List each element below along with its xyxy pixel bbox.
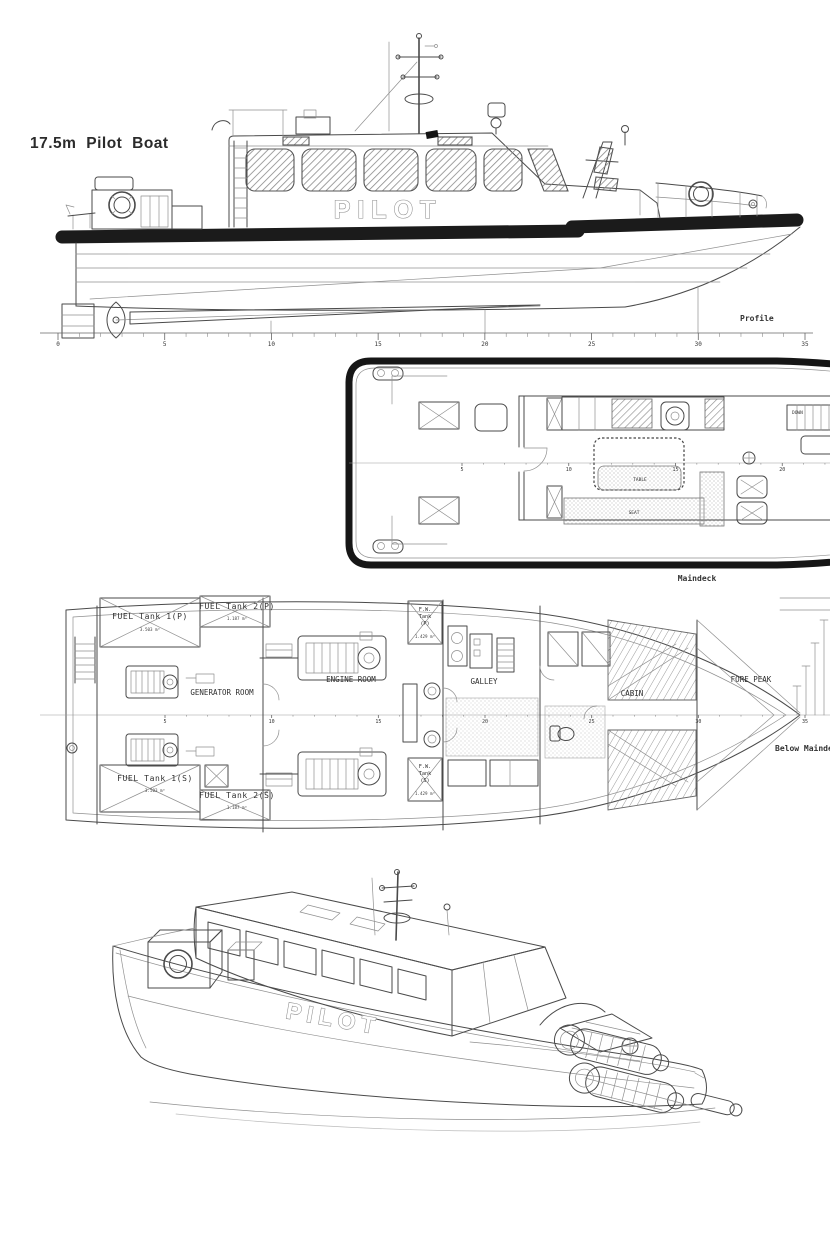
dimension-marks <box>780 598 830 715</box>
svg-text:10: 10 <box>268 341 276 348</box>
svg-text:0: 0 <box>56 341 60 348</box>
fuel-tank-2s-label: FUEL Tank 2(S) <box>199 791 275 800</box>
helm-console <box>737 436 830 524</box>
life-ring-3d-icon <box>164 950 192 978</box>
fuel-tank-1s-label: FUEL Tank 1(S) <box>117 774 193 783</box>
svg-text:15: 15 <box>375 341 383 348</box>
stern-railing <box>66 205 95 229</box>
svg-text:35: 35 <box>802 719 808 725</box>
fw-tank-p-volume: 1.429 m³ <box>415 634 435 639</box>
sheet-title: 17.5m Pilot Boat <box>30 135 169 152</box>
fuel-tank-1s-volume: 3.503 m³ <box>145 788 165 793</box>
fuel-tank-1p-label: FUEL Tank 1(P) <box>112 612 188 621</box>
engine-room-machinery <box>260 632 440 796</box>
galley-units <box>446 626 538 786</box>
fuel-tank-1p-volume: 3.503 m³ <box>140 627 160 632</box>
seat-label: SEAT <box>629 510 640 516</box>
ladder-icon <box>234 141 247 227</box>
cabin-label: CABIN <box>621 689 644 698</box>
fuel-tank-2p <box>200 596 270 627</box>
perspective-view-drawing: PILOT <box>0 850 830 1252</box>
fw-tank-s-l2: Tank <box>419 771 432 777</box>
fw-tank-s-volume: 1.429 m³ <box>415 791 435 796</box>
svg-text:20: 20 <box>779 467 785 473</box>
fw-tank-s-l1: F.W. <box>419 764 432 770</box>
pilot-lettering-3d: PILOT <box>284 997 382 1039</box>
aft-deck-fittings <box>373 367 507 553</box>
life-ring-bow-icon <box>689 182 713 206</box>
engine-room-label: ENGINE ROOM <box>326 675 376 684</box>
below-maindeck-view-drawing: 5101520253035 FUEL Tank 1(P) 3.503 m³ FU… <box>0 588 830 838</box>
hull-3d <box>113 946 707 1107</box>
svg-text:5: 5 <box>163 719 166 725</box>
mast-3d <box>372 870 450 941</box>
roof-railing <box>212 110 330 136</box>
radar-mast-icon <box>355 34 443 134</box>
small-tank <box>205 765 228 787</box>
life-ring-aft-icon <box>109 192 135 218</box>
fuel-tank-2p-volume: 1.187 m³ <box>227 616 247 621</box>
fore-peak-label: FORE PEAK <box>731 675 772 684</box>
fw-tank-p-l2: Tank <box>419 614 432 620</box>
svg-text:15: 15 <box>375 719 381 725</box>
svg-text:5: 5 <box>163 341 167 348</box>
wc-compartment <box>545 706 605 758</box>
searchlight-icon <box>488 103 505 134</box>
bow-light-icon <box>749 200 757 208</box>
fw-tank-p-l1: F.W. <box>419 607 432 613</box>
profile-view-label: Profile <box>740 313 774 323</box>
svg-text:20: 20 <box>481 341 489 348</box>
side-windows-3d <box>208 922 426 1000</box>
fuel-tank-2p-label: FUEL Tank 2(P) <box>199 602 275 611</box>
svg-text:25: 25 <box>588 341 596 348</box>
table-label: TABLE <box>633 477 647 483</box>
station-ruler: 05101520253035 <box>40 333 813 348</box>
pilot-lettering-profile: PILOT <box>334 196 443 224</box>
fw-tank-s-l3: (S) <box>420 778 429 784</box>
galley-label: GALLEY <box>470 677 498 686</box>
svg-text:10: 10 <box>566 467 572 473</box>
foredeck-3d <box>470 1014 704 1078</box>
below-view-label: Below Maindeck <box>775 743 830 753</box>
fuel-tank-2s-volume: 1.187 m³ <box>227 805 247 810</box>
engines-3d <box>540 1003 743 1118</box>
stairs-down <box>787 405 830 430</box>
svg-text:30: 30 <box>695 719 701 725</box>
svg-text:30: 30 <box>695 341 703 348</box>
generator-room-label: GENERATOR ROOM <box>190 688 254 697</box>
svg-text:10: 10 <box>269 719 275 725</box>
down-label: DOWN <box>792 410 803 416</box>
drawing-sheet: 17.5m Pilot Boat <box>0 0 830 1252</box>
cabin-console-units <box>562 397 724 430</box>
stern-ladder-icon <box>67 637 95 753</box>
fw-tank-p-l3: (P) <box>420 621 429 627</box>
svg-text:5: 5 <box>460 467 463 473</box>
svg-text:35: 35 <box>801 341 809 348</box>
profile-view-drawing: 17.5m Pilot Boat <box>0 0 830 352</box>
maindeck-view-label: Maindeck <box>678 573 717 583</box>
maindeck-view-drawing: 510152025 TABLE <box>0 352 830 588</box>
wheelhouse-windows <box>246 130 568 191</box>
